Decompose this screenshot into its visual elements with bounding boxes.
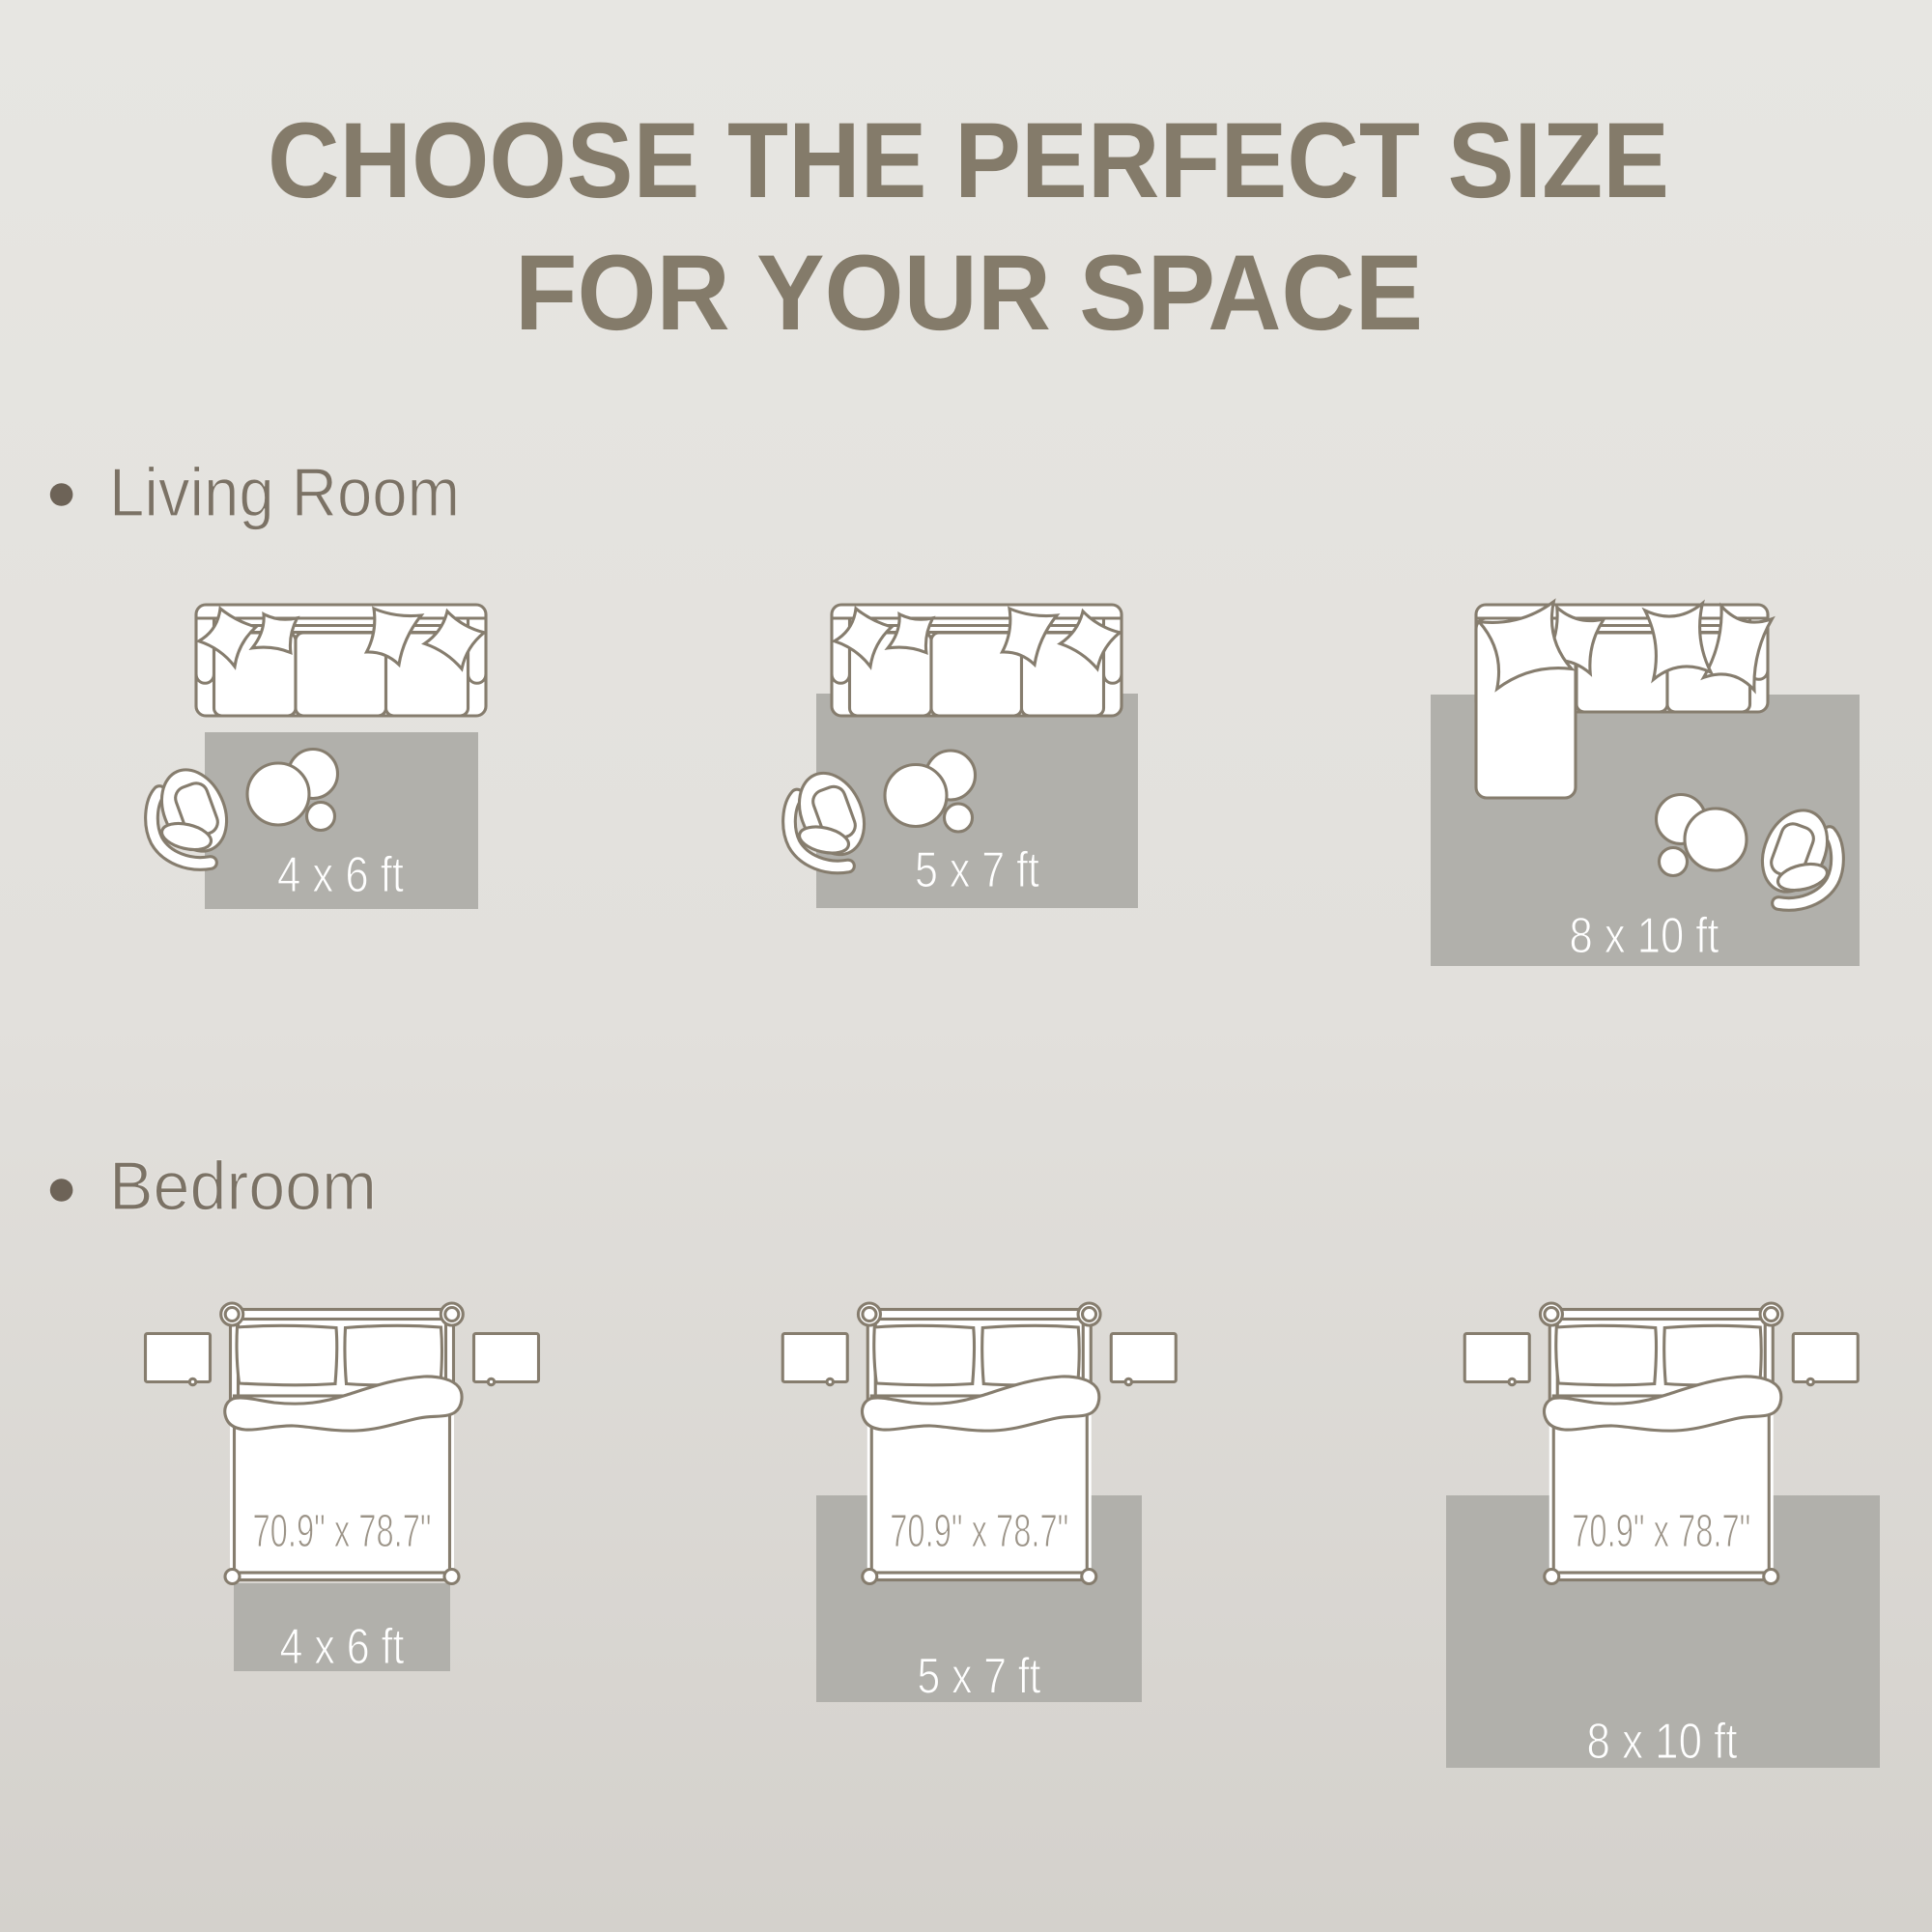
svg-text:CHOOSE THE PERFECT SIZE: CHOOSE THE PERFECT SIZE — [268, 100, 1669, 220]
svg-text:70.9" x 78.7": 70.9" x 78.7" — [1572, 1506, 1750, 1557]
svg-text:4 x 6 ft: 4 x 6 ft — [277, 847, 404, 903]
svg-text:Living Room: Living Room — [109, 455, 460, 531]
svg-text:FOR YOUR SPACE: FOR YOUR SPACE — [515, 233, 1423, 353]
svg-text:Bedroom: Bedroom — [109, 1149, 377, 1225]
svg-text:8 x 10 ft: 8 x 10 ft — [1587, 1714, 1738, 1770]
svg-text:70.9" x 78.7": 70.9" x 78.7" — [890, 1506, 1068, 1557]
svg-text:5 x 7 ft: 5 x 7 ft — [918, 1649, 1041, 1705]
svg-text:70.9" x 78.7": 70.9" x 78.7" — [253, 1506, 432, 1557]
svg-text:4 x 6 ft: 4 x 6 ft — [280, 1619, 405, 1675]
svg-text:5 x 7 ft: 5 x 7 ft — [915, 842, 1039, 898]
svg-text:8 x 10 ft: 8 x 10 ft — [1570, 908, 1719, 964]
